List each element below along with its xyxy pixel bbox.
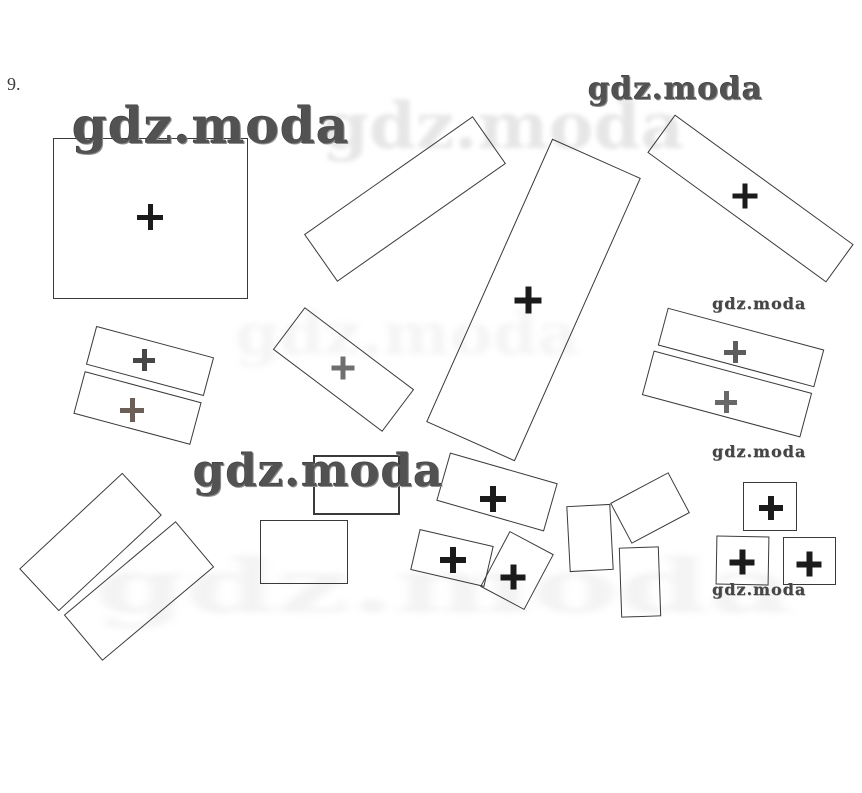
rect-small-vertical-1 bbox=[566, 504, 613, 572]
plus-mark bbox=[120, 398, 144, 422]
plus-mark bbox=[332, 357, 355, 380]
plus-mark bbox=[797, 552, 822, 577]
rect-small-vertical-2 bbox=[619, 546, 661, 617]
watermark: gdz.moda bbox=[712, 444, 806, 460]
plus-mark bbox=[715, 391, 737, 413]
plus-mark bbox=[515, 287, 542, 314]
plus-mark bbox=[133, 349, 155, 371]
plus-mark bbox=[724, 341, 746, 363]
plus-mark bbox=[440, 547, 466, 573]
rect-small-rotated-right bbox=[610, 472, 690, 544]
watermark: gdz.moda bbox=[712, 582, 806, 598]
plus-mark bbox=[733, 184, 758, 209]
watermark: gdz.moda bbox=[588, 74, 763, 105]
rect-below-watermark bbox=[260, 520, 348, 584]
watermark: gdz.moda bbox=[712, 296, 806, 312]
worksheet-page: 9. gdz.modagdz.modagdz.modagdz.modagdz.m… bbox=[0, 0, 862, 793]
plus-mark bbox=[137, 204, 163, 230]
watermark: gdz.moda bbox=[72, 101, 349, 151]
plus-mark bbox=[730, 550, 755, 575]
watermark: gdz.moda bbox=[193, 448, 443, 493]
plus-mark bbox=[501, 565, 526, 590]
plus-mark bbox=[759, 496, 783, 520]
plus-mark bbox=[480, 486, 506, 512]
problem-number: 9. bbox=[7, 74, 21, 95]
